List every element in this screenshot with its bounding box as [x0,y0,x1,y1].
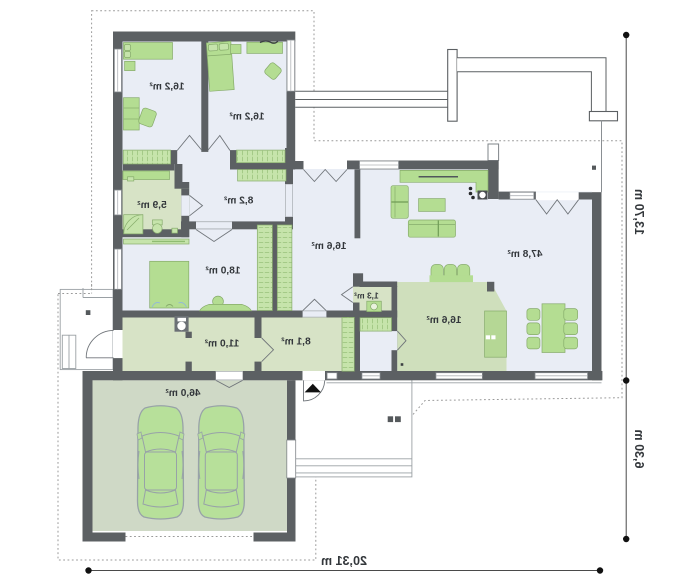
svg-text:1,3 m²: 1,3 m² [354,291,379,301]
svg-text:16,2 m²: 16,2 m² [149,82,185,93]
svg-text:46,0 m²: 46,0 m² [165,388,201,399]
svg-text:16,2 m²: 16,2 m² [229,112,265,123]
svg-text:20,31 m: 20,31 m [321,554,367,568]
svg-text:8,1 m²: 8,1 m² [281,337,311,348]
svg-text:5,9 m²: 5,9 m² [137,200,167,211]
svg-text:16,6 m²: 16,6 m² [311,241,347,252]
svg-text:18,0 m²: 18,0 m² [205,266,241,277]
svg-text:8,2 m²: 8,2 m² [223,196,253,207]
svg-text:47,8 m²: 47,8 m² [507,249,543,260]
svg-text:11,0 m²: 11,0 m² [204,339,239,350]
svg-text:6,30 m: 6,30 m [632,430,646,469]
svg-text:13,70 m: 13,70 m [632,189,646,235]
svg-text:16,6 m²: 16,6 m² [426,315,462,326]
